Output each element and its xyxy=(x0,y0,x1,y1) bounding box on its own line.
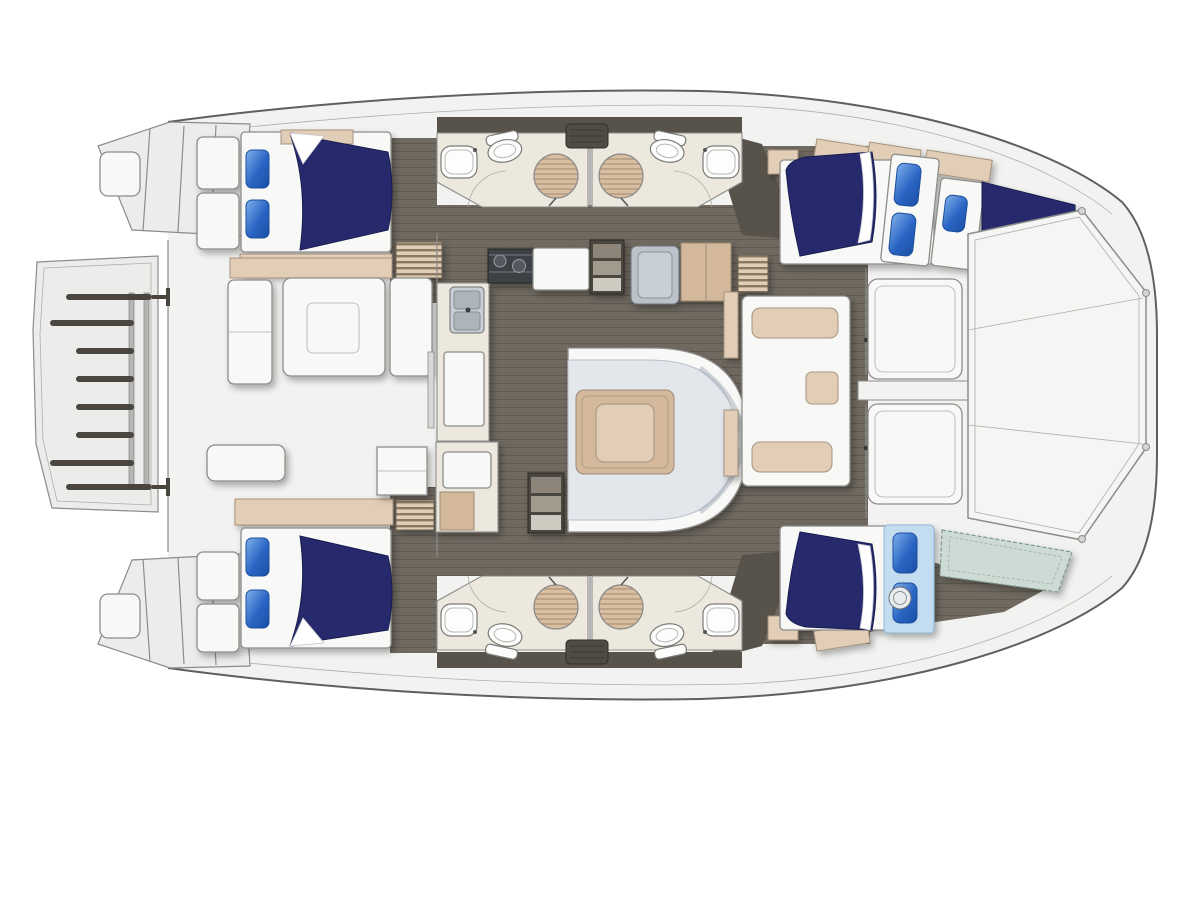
wardrobe xyxy=(197,604,239,652)
boarding-step-starboard xyxy=(100,594,140,638)
shelf-strip xyxy=(724,410,738,476)
catamaran-floorplan xyxy=(0,0,1200,900)
deck-porthole xyxy=(889,587,911,609)
companionway-steps xyxy=(396,242,442,278)
faucet xyxy=(473,630,477,634)
sink xyxy=(703,146,739,178)
wardrobe xyxy=(197,193,239,249)
faucet xyxy=(703,148,707,152)
steps-to-foredeck xyxy=(738,255,768,292)
sink xyxy=(703,604,739,636)
port-heads xyxy=(437,124,742,207)
seat-cushion xyxy=(752,308,838,338)
boarding-step-port xyxy=(100,152,140,196)
companionway-steps xyxy=(396,500,434,530)
pillow xyxy=(246,590,269,628)
floorplan-svg xyxy=(0,0,1200,900)
pillow xyxy=(893,533,917,573)
sink xyxy=(441,146,477,178)
counter-board xyxy=(444,352,484,426)
pillow xyxy=(246,200,269,238)
sink-basin xyxy=(454,312,480,330)
stern-platform xyxy=(33,256,170,512)
bow-seat xyxy=(868,404,962,504)
faucet xyxy=(466,308,471,313)
wardrobe xyxy=(197,552,239,600)
rail-fitting xyxy=(1079,208,1086,215)
bow-seat xyxy=(868,279,962,379)
shower-mat xyxy=(534,154,578,198)
seat-cushion xyxy=(806,372,838,404)
sink xyxy=(441,604,477,636)
burner xyxy=(494,255,506,267)
seat-cushion xyxy=(752,442,832,472)
sliding-door xyxy=(428,352,434,428)
pillow xyxy=(894,163,922,207)
cabinet-drawer xyxy=(440,492,474,530)
refrigerator-lid xyxy=(638,252,672,298)
rail-fitting xyxy=(1143,444,1150,451)
forward-crossbeam xyxy=(858,381,976,400)
salon-table-top xyxy=(596,404,654,462)
cockpit-aft-bench xyxy=(207,445,285,481)
shower-mat xyxy=(599,154,643,198)
wardrobe xyxy=(197,137,239,189)
forward-cockpit xyxy=(858,279,976,504)
cockpit-table xyxy=(283,278,385,376)
pillow xyxy=(246,150,269,188)
cabinet-door xyxy=(443,452,491,488)
pillow xyxy=(888,212,916,256)
shower-mat xyxy=(534,585,578,629)
cockpit-side-seat xyxy=(390,278,432,376)
davit-rail-outer xyxy=(144,293,149,487)
shower-mat xyxy=(599,585,643,629)
cockpit-aft-seatback xyxy=(230,258,392,278)
rail-fitting xyxy=(1143,290,1150,297)
rail-fitting xyxy=(1079,536,1086,543)
sink-basin xyxy=(454,291,480,309)
pillow xyxy=(246,538,269,576)
cabin-side-shelf xyxy=(235,499,393,525)
burner xyxy=(513,260,526,273)
steps-to-port-hull xyxy=(590,240,624,294)
pillow xyxy=(942,194,968,232)
galley-worktop xyxy=(533,248,589,290)
salon-dinette xyxy=(568,348,748,532)
faucet xyxy=(473,148,477,152)
shelf-strip xyxy=(724,292,738,358)
faucet xyxy=(703,630,707,634)
steps-to-starboard-hull xyxy=(528,473,564,533)
stove xyxy=(488,249,533,283)
